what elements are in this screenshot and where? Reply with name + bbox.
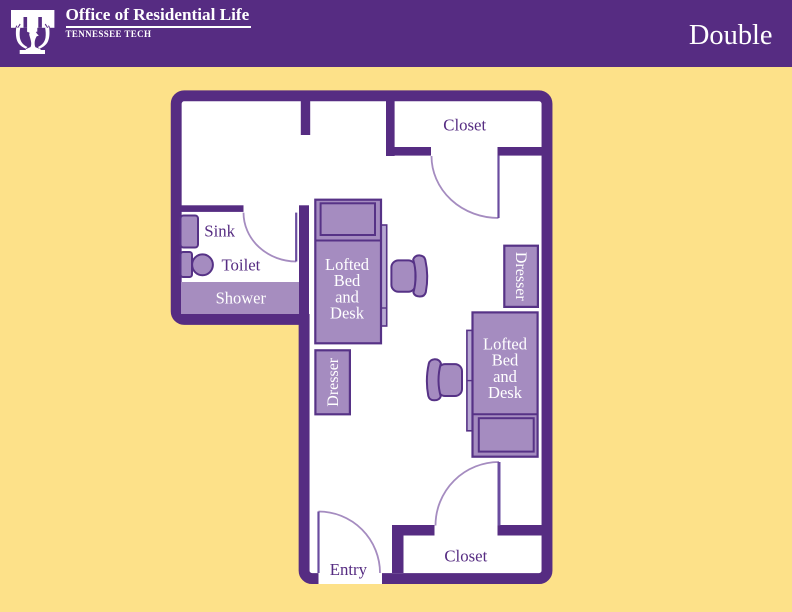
svg-text:Dresser: Dresser — [512, 252, 529, 302]
svg-text:Desk: Desk — [488, 383, 523, 402]
svg-text:Entry: Entry — [330, 560, 368, 579]
svg-text:Closet: Closet — [444, 547, 487, 566]
svg-text:Closet: Closet — [443, 116, 486, 135]
svg-text:Sink: Sink — [204, 222, 235, 241]
svg-text:Desk: Desk — [330, 304, 365, 323]
svg-text:Dresser: Dresser — [325, 357, 342, 407]
svg-text:Toilet: Toilet — [221, 255, 260, 274]
svg-text:Shower: Shower — [216, 288, 267, 307]
